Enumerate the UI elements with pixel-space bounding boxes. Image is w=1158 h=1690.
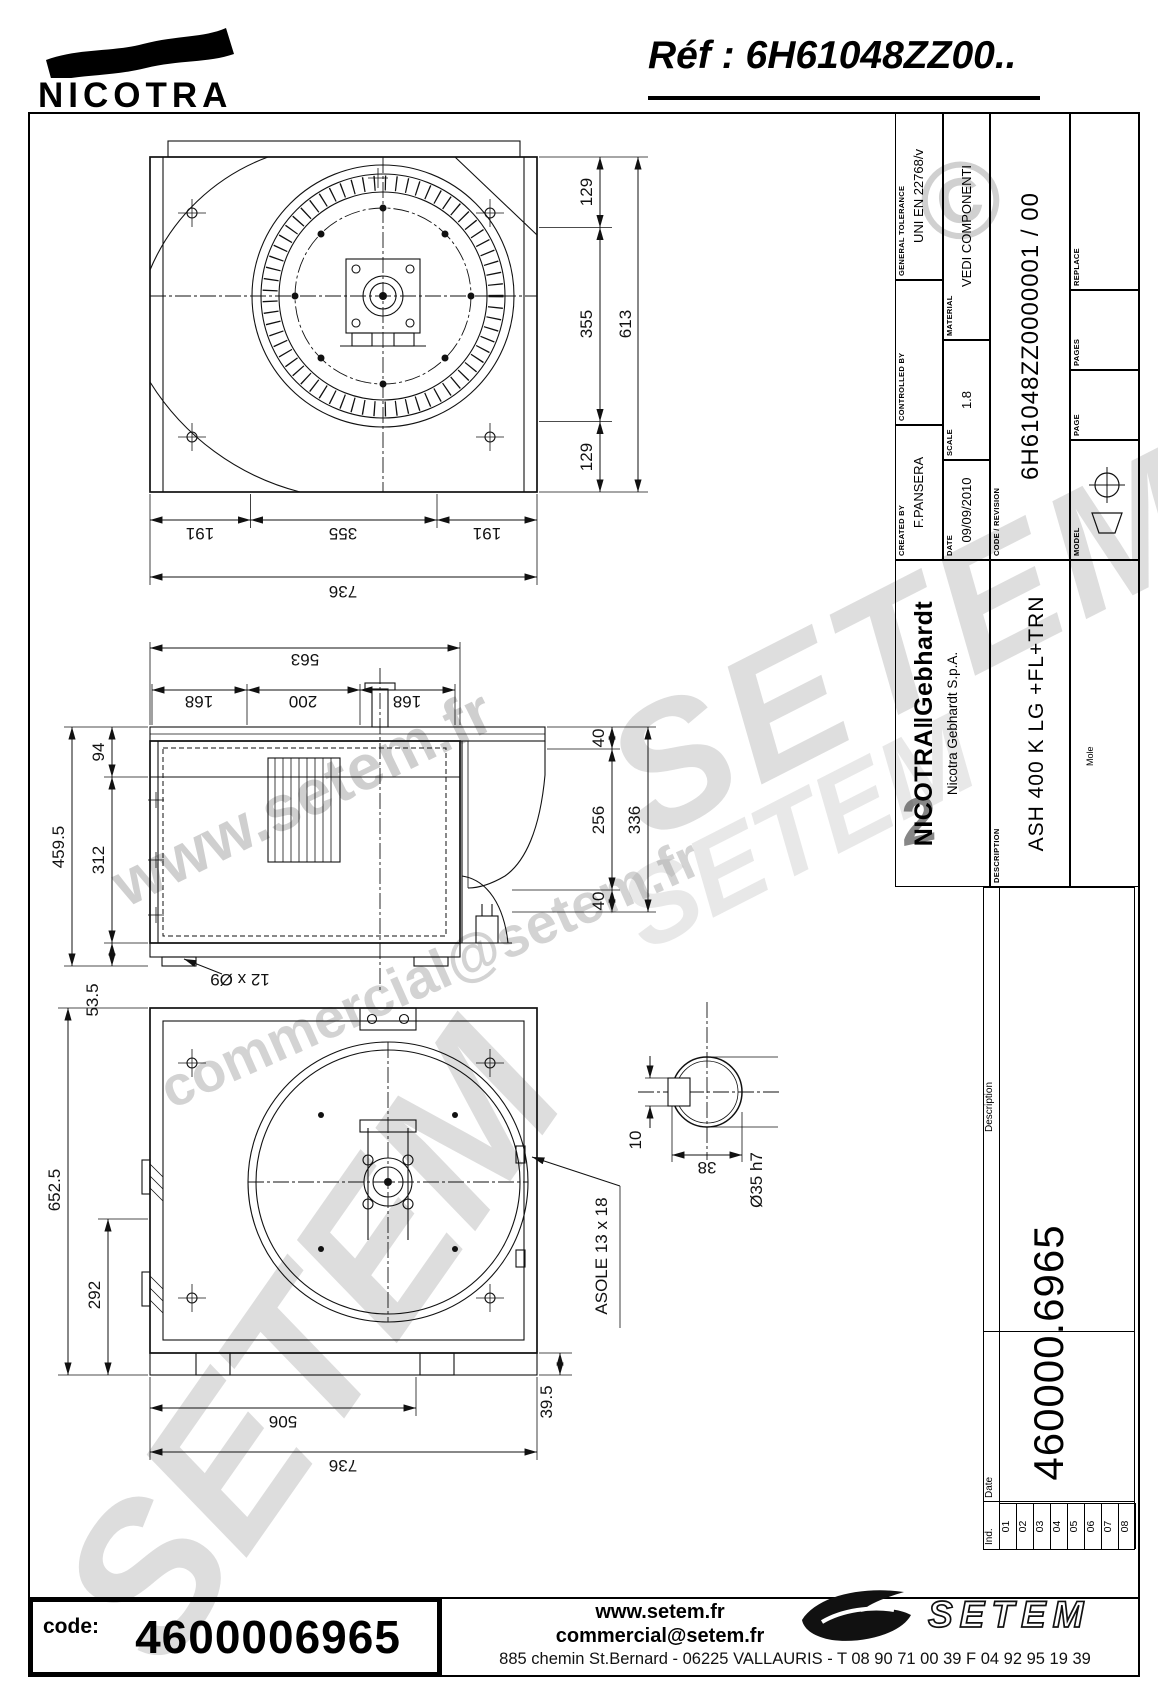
dim-label: 10 <box>626 1131 645 1150</box>
dim-label: 355 <box>329 524 357 543</box>
cell-description: DESCRIPTION ASH 400 K LG +FL+TRN <box>990 560 1070 887</box>
created-by-value: F.PANSERA <box>911 426 926 559</box>
model-label: MODEL <box>1072 527 1081 556</box>
dim-label: 94 <box>89 743 108 762</box>
title-block: CREATED BY F.PANSERA CONTROLLED BY GENER… <box>895 112 1140 1560</box>
cell-model: MODEL <box>1070 440 1140 560</box>
setem-logo-text: SETEM <box>928 1594 1090 1636</box>
created-by-label: CREATED BY <box>897 505 906 556</box>
revision-row: 06 <box>1085 1503 1102 1549</box>
dim-label: 53.5 <box>83 983 102 1016</box>
dim-label: 39.5 <box>537 1385 556 1418</box>
dim-label: 40 <box>589 892 608 911</box>
dim-label: Ø35 h7 <box>747 1152 766 1208</box>
cell-general-tolerance: GENERAL TOLERANCE UNI EN 22768/v <box>895 112 943 280</box>
shaft-detail-drawing: 10 38 Ø35 h7 <box>626 1002 782 1208</box>
dim-label: 38 <box>698 1158 717 1177</box>
dim-label: 459.5 <box>49 826 68 869</box>
dim-label: 129 <box>577 443 596 471</box>
date-label: DATE <box>945 535 954 556</box>
code-label: code: <box>43 1615 99 1639</box>
code-revision-value: 6H61048ZZ0000001 / 00 <box>1017 113 1045 559</box>
cell-page: PAGE <box>1070 370 1140 440</box>
scale-label: SCALE <box>945 429 954 456</box>
revision-row: 02 <box>1017 1503 1034 1549</box>
code-revision-label: CODE / REVISION <box>992 488 1001 556</box>
drawing-sheet: www.setem.fr SETEM commercial@setem.fr S… <box>0 0 1158 1690</box>
dim-label: 191 <box>186 524 214 543</box>
scale-value: 1.8 <box>959 341 974 459</box>
revision-col-description: Description <box>984 886 1000 1332</box>
dim-label: 40 <box>589 729 608 748</box>
revision-col-ind: Ind. <box>984 1502 1000 1549</box>
cell-mole: Mole <box>1070 560 1140 887</box>
dim-label: 168 <box>393 692 421 711</box>
item-code: 460000.6965 <box>1025 1200 1077 1505</box>
hole-callout: 12 x Ø9 <box>210 970 270 989</box>
dim-label: 191 <box>473 524 501 543</box>
replace-label: REPLACE <box>1072 248 1081 286</box>
cell-company: NICOTRA‖Gebhardt Nicotra Gebhardt S.p.A. <box>895 560 990 887</box>
cell-created-by: CREATED BY F.PANSERA <box>895 425 943 560</box>
revision-row: 05 <box>1068 1503 1085 1549</box>
dim-label: 200 <box>289 692 317 711</box>
back-view-drawing: ASOLE 13 x 18 652.5 292 506 736 39.5 <box>45 1008 620 1475</box>
cell-date: DATE 09/09/2010 <box>943 460 990 560</box>
description-value: ASH 400 K LG +FL+TRN <box>1025 561 1049 886</box>
revision-row: 01 <box>1000 1503 1017 1549</box>
revision-col-date: Date <box>984 1332 1000 1502</box>
revision-row: 03 <box>1034 1503 1051 1549</box>
dim-label: 736 <box>329 582 357 601</box>
description-label: DESCRIPTION <box>992 828 1001 883</box>
dim-label: 613 <box>616 310 635 338</box>
dim-label: 312 <box>89 846 108 874</box>
code-value: 4600006965 <box>99 1610 437 1664</box>
dim-label: 336 <box>625 806 644 834</box>
cell-controlled-by: CONTROLLED BY <box>895 280 943 425</box>
dim-label: 256 <box>589 806 608 834</box>
front-view-drawing: 129 355 129 613 191 355 191 736 <box>150 141 648 601</box>
revision-row: 04 <box>1051 1503 1068 1549</box>
general-tolerance-label: GENERAL TOLERANCE <box>897 186 906 276</box>
general-tolerance-value: UNI EN 22768/v <box>911 113 926 279</box>
material-value: VEDI COMPONENTI <box>959 113 974 339</box>
side-view-drawing: 563 168 200 168 <box>49 642 656 1017</box>
cell-code-revision: CODE / REVISION 6H61048ZZ0000001 / 00 <box>990 112 1070 560</box>
slot-callout: ASOLE 13 x 18 <box>592 1197 611 1314</box>
company-name: Nicotra Gebhardt S.p.A. <box>945 561 960 886</box>
mole-label: Mole <box>1085 746 1095 766</box>
code-box: code: 4600006965 <box>28 1597 442 1677</box>
pages-label: PAGES <box>1072 339 1081 366</box>
company-logo-text: NICOTRA‖Gebhardt <box>910 561 939 886</box>
dim-label: 292 <box>85 1281 104 1309</box>
cell-material: MATERIAL VEDI COMPONENTI <box>943 112 990 340</box>
page-label: PAGE <box>1072 414 1081 436</box>
revision-row: 08 <box>1119 1503 1136 1549</box>
dim-label: 355 <box>577 310 596 338</box>
dim-label: 563 <box>291 650 319 669</box>
controlled-by-label: CONTROLLED BY <box>897 353 906 421</box>
cell-replace: REPLACE <box>1070 112 1140 290</box>
dim-label: 506 <box>269 1412 297 1431</box>
setem-swoosh-icon <box>782 1582 932 1652</box>
revision-row: 07 <box>1102 1503 1119 1549</box>
material-label: MATERIAL <box>945 295 954 336</box>
dim-label: 168 <box>185 692 213 711</box>
dim-label: 652.5 <box>45 1169 64 1212</box>
dim-label: 736 <box>329 1456 357 1475</box>
date-value: 09/09/2010 <box>959 461 974 559</box>
projection-symbol-icon <box>1087 457 1131 541</box>
dim-label: 129 <box>577 178 596 206</box>
cell-scale: SCALE 1.8 <box>943 340 990 460</box>
address: 885 chemin St.Bernard - 06225 VALLAURIS … <box>450 1650 1140 1669</box>
cell-pages: PAGES <box>1070 290 1140 370</box>
